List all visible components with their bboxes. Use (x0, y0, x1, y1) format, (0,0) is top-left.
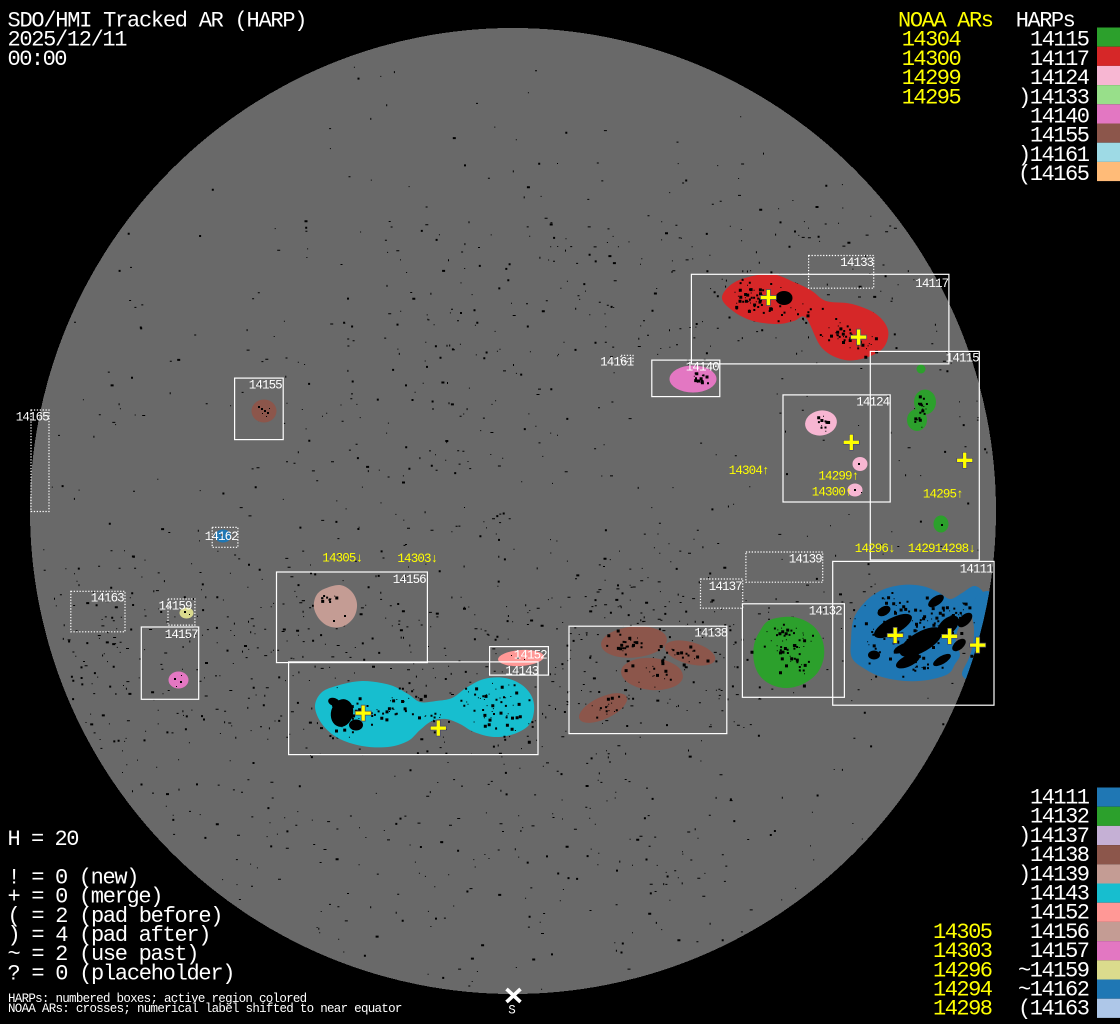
svg-text:14132: 14132 (809, 605, 843, 619)
svg-text:14140: 14140 (686, 361, 720, 375)
svg-text:S: S (508, 1004, 516, 1018)
svg-text:14124: 14124 (856, 396, 890, 410)
svg-text:14162: 14162 (205, 530, 239, 544)
svg-text:14138: 14138 (694, 627, 728, 641)
svg-text:142914298↓: 142914298↓ (908, 542, 976, 556)
svg-text:14303↓: 14303↓ (397, 552, 438, 566)
svg-text:14155: 14155 (249, 379, 283, 393)
svg-text:14165: 14165 (16, 410, 50, 424)
svg-text:14163: 14163 (91, 592, 125, 606)
svg-text:14117: 14117 (915, 277, 949, 291)
svg-text:14304↑: 14304↑ (729, 464, 770, 478)
svg-text:14143: 14143 (505, 665, 539, 679)
svg-text:? = 0 (placeholder): ? = 0 (placeholder) (8, 961, 236, 986)
svg-text:14295↑: 14295↑ (923, 488, 964, 502)
svg-text:14300↑: 14300↑ (812, 485, 853, 499)
svg-text:H = 20: H = 20 (8, 827, 80, 852)
svg-text:14111: 14111 (960, 563, 994, 577)
svg-text:14159: 14159 (159, 600, 193, 614)
svg-text:14156: 14156 (393, 573, 427, 587)
svg-text:14295: 14295 (902, 85, 962, 110)
svg-text:14296↓: 14296↓ (855, 542, 896, 556)
svg-text:14133: 14133 (840, 256, 874, 270)
svg-text:14305↓: 14305↓ (322, 552, 363, 566)
svg-text:(14163: (14163 (1018, 997, 1090, 1022)
svg-text:14157: 14157 (165, 628, 199, 642)
svg-text:14115: 14115 (946, 352, 980, 366)
svg-text:14161: 14161 (600, 356, 634, 370)
svg-text:14298: 14298 (933, 997, 993, 1022)
svg-text:14299↑: 14299↑ (818, 469, 859, 483)
svg-text:14137: 14137 (709, 580, 743, 594)
svg-text:00:00: 00:00 (8, 47, 68, 72)
svg-text:14139: 14139 (789, 553, 823, 567)
svg-text:NOAA ARs: crosses; numerical l: NOAA ARs: crosses; numerical label shift… (8, 1002, 402, 1016)
svg-text:14152: 14152 (514, 649, 548, 663)
svg-text:(14165: (14165 (1018, 162, 1090, 187)
